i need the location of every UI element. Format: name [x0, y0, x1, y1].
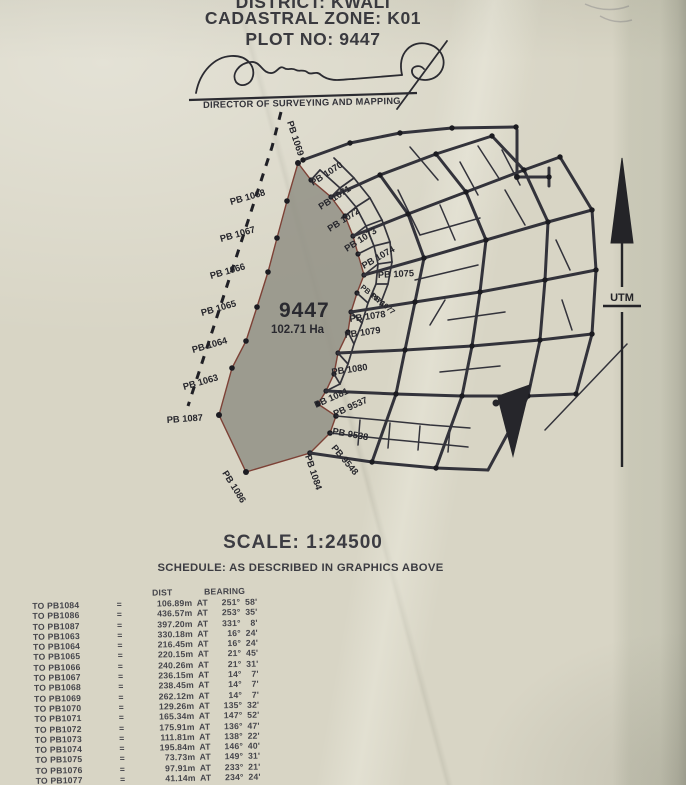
cell-bearing-deg: 233°	[215, 762, 243, 773]
cell-eq: =	[103, 630, 137, 641]
cell-at: AT	[195, 762, 215, 773]
cell-bearing-min: 8'	[241, 617, 258, 628]
cell-at: AT	[193, 628, 213, 639]
schedule-title: SCHEDULE: AS DESCRIBED IN GRAPHICS ABOVE	[0, 562, 601, 574]
scale-label: SCALE: 1:24500	[0, 532, 606, 554]
cell-eq: =	[104, 712, 138, 723]
cell-at: AT	[192, 608, 212, 619]
cell-bearing-min: 31'	[243, 751, 260, 762]
cell-bearing-min: 24'	[244, 772, 261, 783]
cell-at: AT	[195, 721, 215, 732]
cell-bearing-deg: 234°	[216, 772, 244, 783]
cell-bearing-deg: 138°	[215, 731, 243, 742]
beacon-label-pb1070: PB 1070	[309, 160, 345, 188]
plot-area-label: 102.71 Ha	[271, 324, 325, 336]
cell-bearing-deg: 135°	[214, 700, 242, 711]
beacon-label-pb1087: PB 1087	[166, 412, 203, 424]
cell-bearing-min: 47'	[243, 720, 260, 731]
cell-bearing-deg: 149°	[215, 751, 243, 762]
cell-at: AT	[193, 618, 213, 629]
cell-bearing-min: 58'	[240, 597, 257, 608]
cell-at: AT	[194, 700, 214, 711]
cell-at: AT	[194, 670, 214, 681]
cell-bearing-deg: 21°	[213, 648, 241, 659]
cell-at: AT	[196, 772, 216, 783]
beacon-label-pb1068: PB 1068	[229, 187, 267, 207]
beacon-label-pb1086: PB 1086	[220, 469, 248, 505]
cell-at: AT	[195, 742, 215, 753]
beacon-label-pb1084: PB 1084	[303, 454, 324, 492]
beacon-label-pb1076: PB 1076	[359, 283, 387, 309]
cell-eq: =	[104, 671, 138, 682]
beacon-label-pb9538: PB 9538	[332, 426, 369, 442]
pencil-marks	[585, 4, 632, 22]
cell-bearing-min: 52'	[242, 710, 259, 721]
beacon-label-pb1075: PB 1075	[378, 268, 415, 280]
cell-at: AT	[192, 597, 212, 608]
cell-eq: =	[105, 764, 139, 775]
schedule-header-bearing: BEARING	[204, 586, 245, 597]
cell-at: AT	[194, 680, 214, 691]
cell-bearing-min: 32'	[242, 700, 259, 711]
cell-to: TO PB1077	[32, 775, 106, 785]
cell-bearing-min: 45'	[241, 648, 258, 659]
cell-at: AT	[193, 649, 213, 660]
beacon-label-pb1066: PB 1066	[209, 261, 247, 281]
schedule-rows: TO PB1084=106.89mAT251°58'TO PB1086=436.…	[28, 597, 264, 785]
cell-bearing-deg: 14°	[214, 690, 242, 701]
cell-bearing-min: 31'	[241, 658, 258, 669]
beacon-label-pb1067: PB 1067	[219, 224, 257, 244]
cell-at: AT	[193, 659, 213, 670]
cell-bearing-min: 22'	[243, 730, 260, 741]
cell-bearing-deg: 14°	[214, 669, 242, 680]
scanned-survey-plan: DISTRICT: KWALI CADASTRAL ZONE: K01 PLOT…	[0, 0, 686, 785]
cell-bearing-min: 21'	[243, 761, 260, 772]
cell-at: AT	[194, 711, 214, 722]
cell-eq: =	[102, 609, 136, 620]
schedule-table: DIST BEARING TO PB1084=106.89mAT251°58'T…	[28, 586, 264, 785]
north-arrow-icon	[603, 158, 641, 467]
cell-bearing-deg: 253°	[212, 607, 240, 618]
cell-eq: =	[106, 774, 140, 785]
plot-number-label: 9447	[279, 299, 330, 322]
cell-bearing-min: 40'	[243, 741, 260, 752]
cell-bearing-deg: 21°	[213, 659, 241, 670]
beacon-label-pb1069: PB 1069	[285, 120, 306, 158]
beacon-label-pb1063: PB 1063	[182, 372, 220, 392]
cell-eq: =	[105, 753, 139, 764]
cell-eq: =	[102, 599, 136, 610]
cell-bearing-deg: 16°	[213, 638, 241, 649]
cell-bearing-deg: 14°	[214, 679, 242, 690]
cell-eq: =	[104, 692, 138, 703]
cell-eq: =	[103, 650, 137, 661]
utm-label: UTM	[610, 292, 634, 304]
cell-eq: =	[105, 743, 139, 754]
cell-bearing-deg: 147°	[214, 710, 242, 721]
cell-bearing-min: 24'	[241, 638, 258, 649]
beacon-label-pb1064: PB 1064	[191, 335, 229, 355]
cell-at: AT	[195, 752, 215, 763]
cell-dist: 41.14m	[140, 773, 196, 784]
cell-eq: =	[105, 733, 139, 744]
cell-bearing-deg: 16°	[213, 628, 241, 639]
beacon-label-pb1079: PB 1079	[344, 325, 381, 340]
cell-bearing-min: 7'	[242, 679, 259, 690]
cell-bearing-deg: 136°	[215, 720, 243, 731]
cell-bearing-min: 35'	[240, 607, 257, 618]
cell-eq: =	[104, 702, 138, 713]
cell-bearing-deg: 331°	[213, 618, 241, 629]
cell-eq: =	[105, 722, 139, 733]
cell-eq: =	[103, 620, 137, 631]
cell-bearing-min: 7'	[242, 689, 259, 700]
cell-eq: =	[103, 640, 137, 651]
cell-bearing-min: 7'	[242, 669, 259, 680]
cell-eq: =	[104, 681, 138, 692]
cell-at: AT	[194, 690, 214, 701]
cell-bearing-deg: 146°	[215, 741, 243, 752]
cell-bearing-min: 24'	[241, 627, 258, 638]
schedule-header-dist: DIST	[152, 587, 173, 597]
cell-at: AT	[193, 639, 213, 650]
cell-eq: =	[103, 661, 137, 672]
cell-at: AT	[195, 731, 215, 742]
cell-bearing-deg: 251°	[212, 597, 240, 608]
